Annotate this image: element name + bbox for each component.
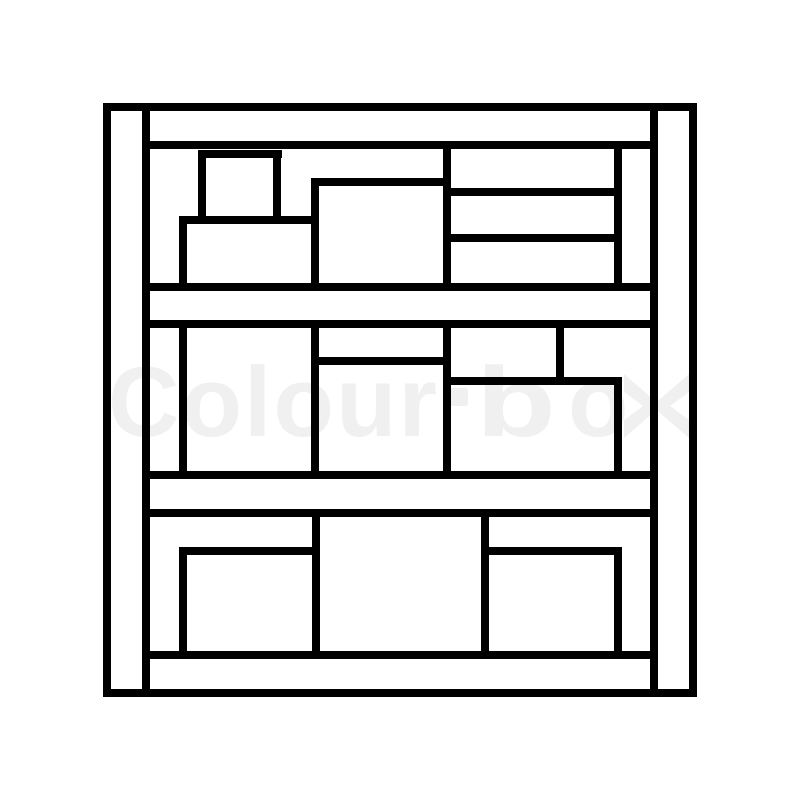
svg-text:b: b xyxy=(476,346,556,457)
